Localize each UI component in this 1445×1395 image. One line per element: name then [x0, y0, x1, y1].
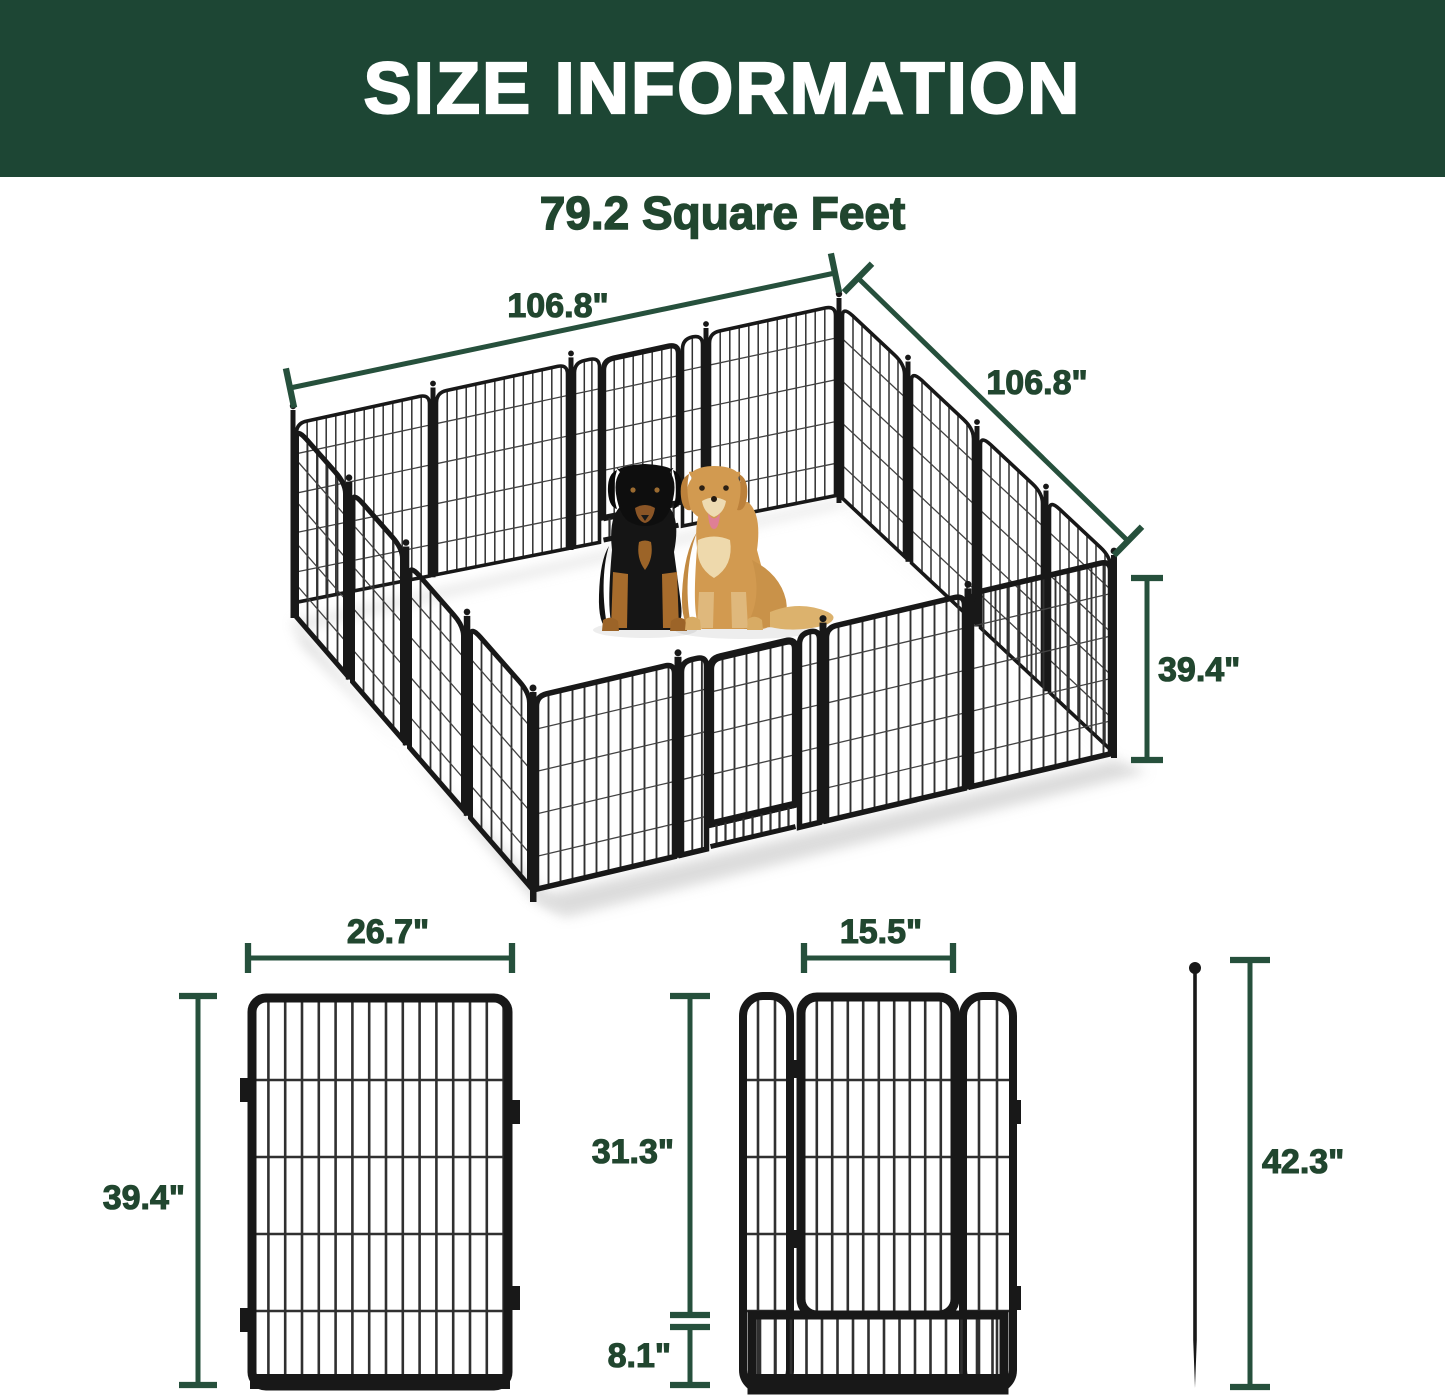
- svg-text:106.8": 106.8": [986, 364, 1087, 402]
- svg-text:15.5": 15.5": [840, 913, 922, 951]
- svg-text:31.3": 31.3": [592, 1133, 674, 1171]
- svg-text:39.4": 39.4": [1158, 651, 1240, 689]
- svg-text:39.4": 39.4": [103, 1179, 185, 1217]
- svg-text:106.8": 106.8": [507, 287, 608, 325]
- svg-text:26.7": 26.7": [347, 913, 429, 951]
- svg-text:42.3": 42.3": [1262, 1143, 1344, 1181]
- svg-text:8.1": 8.1": [608, 1337, 671, 1375]
